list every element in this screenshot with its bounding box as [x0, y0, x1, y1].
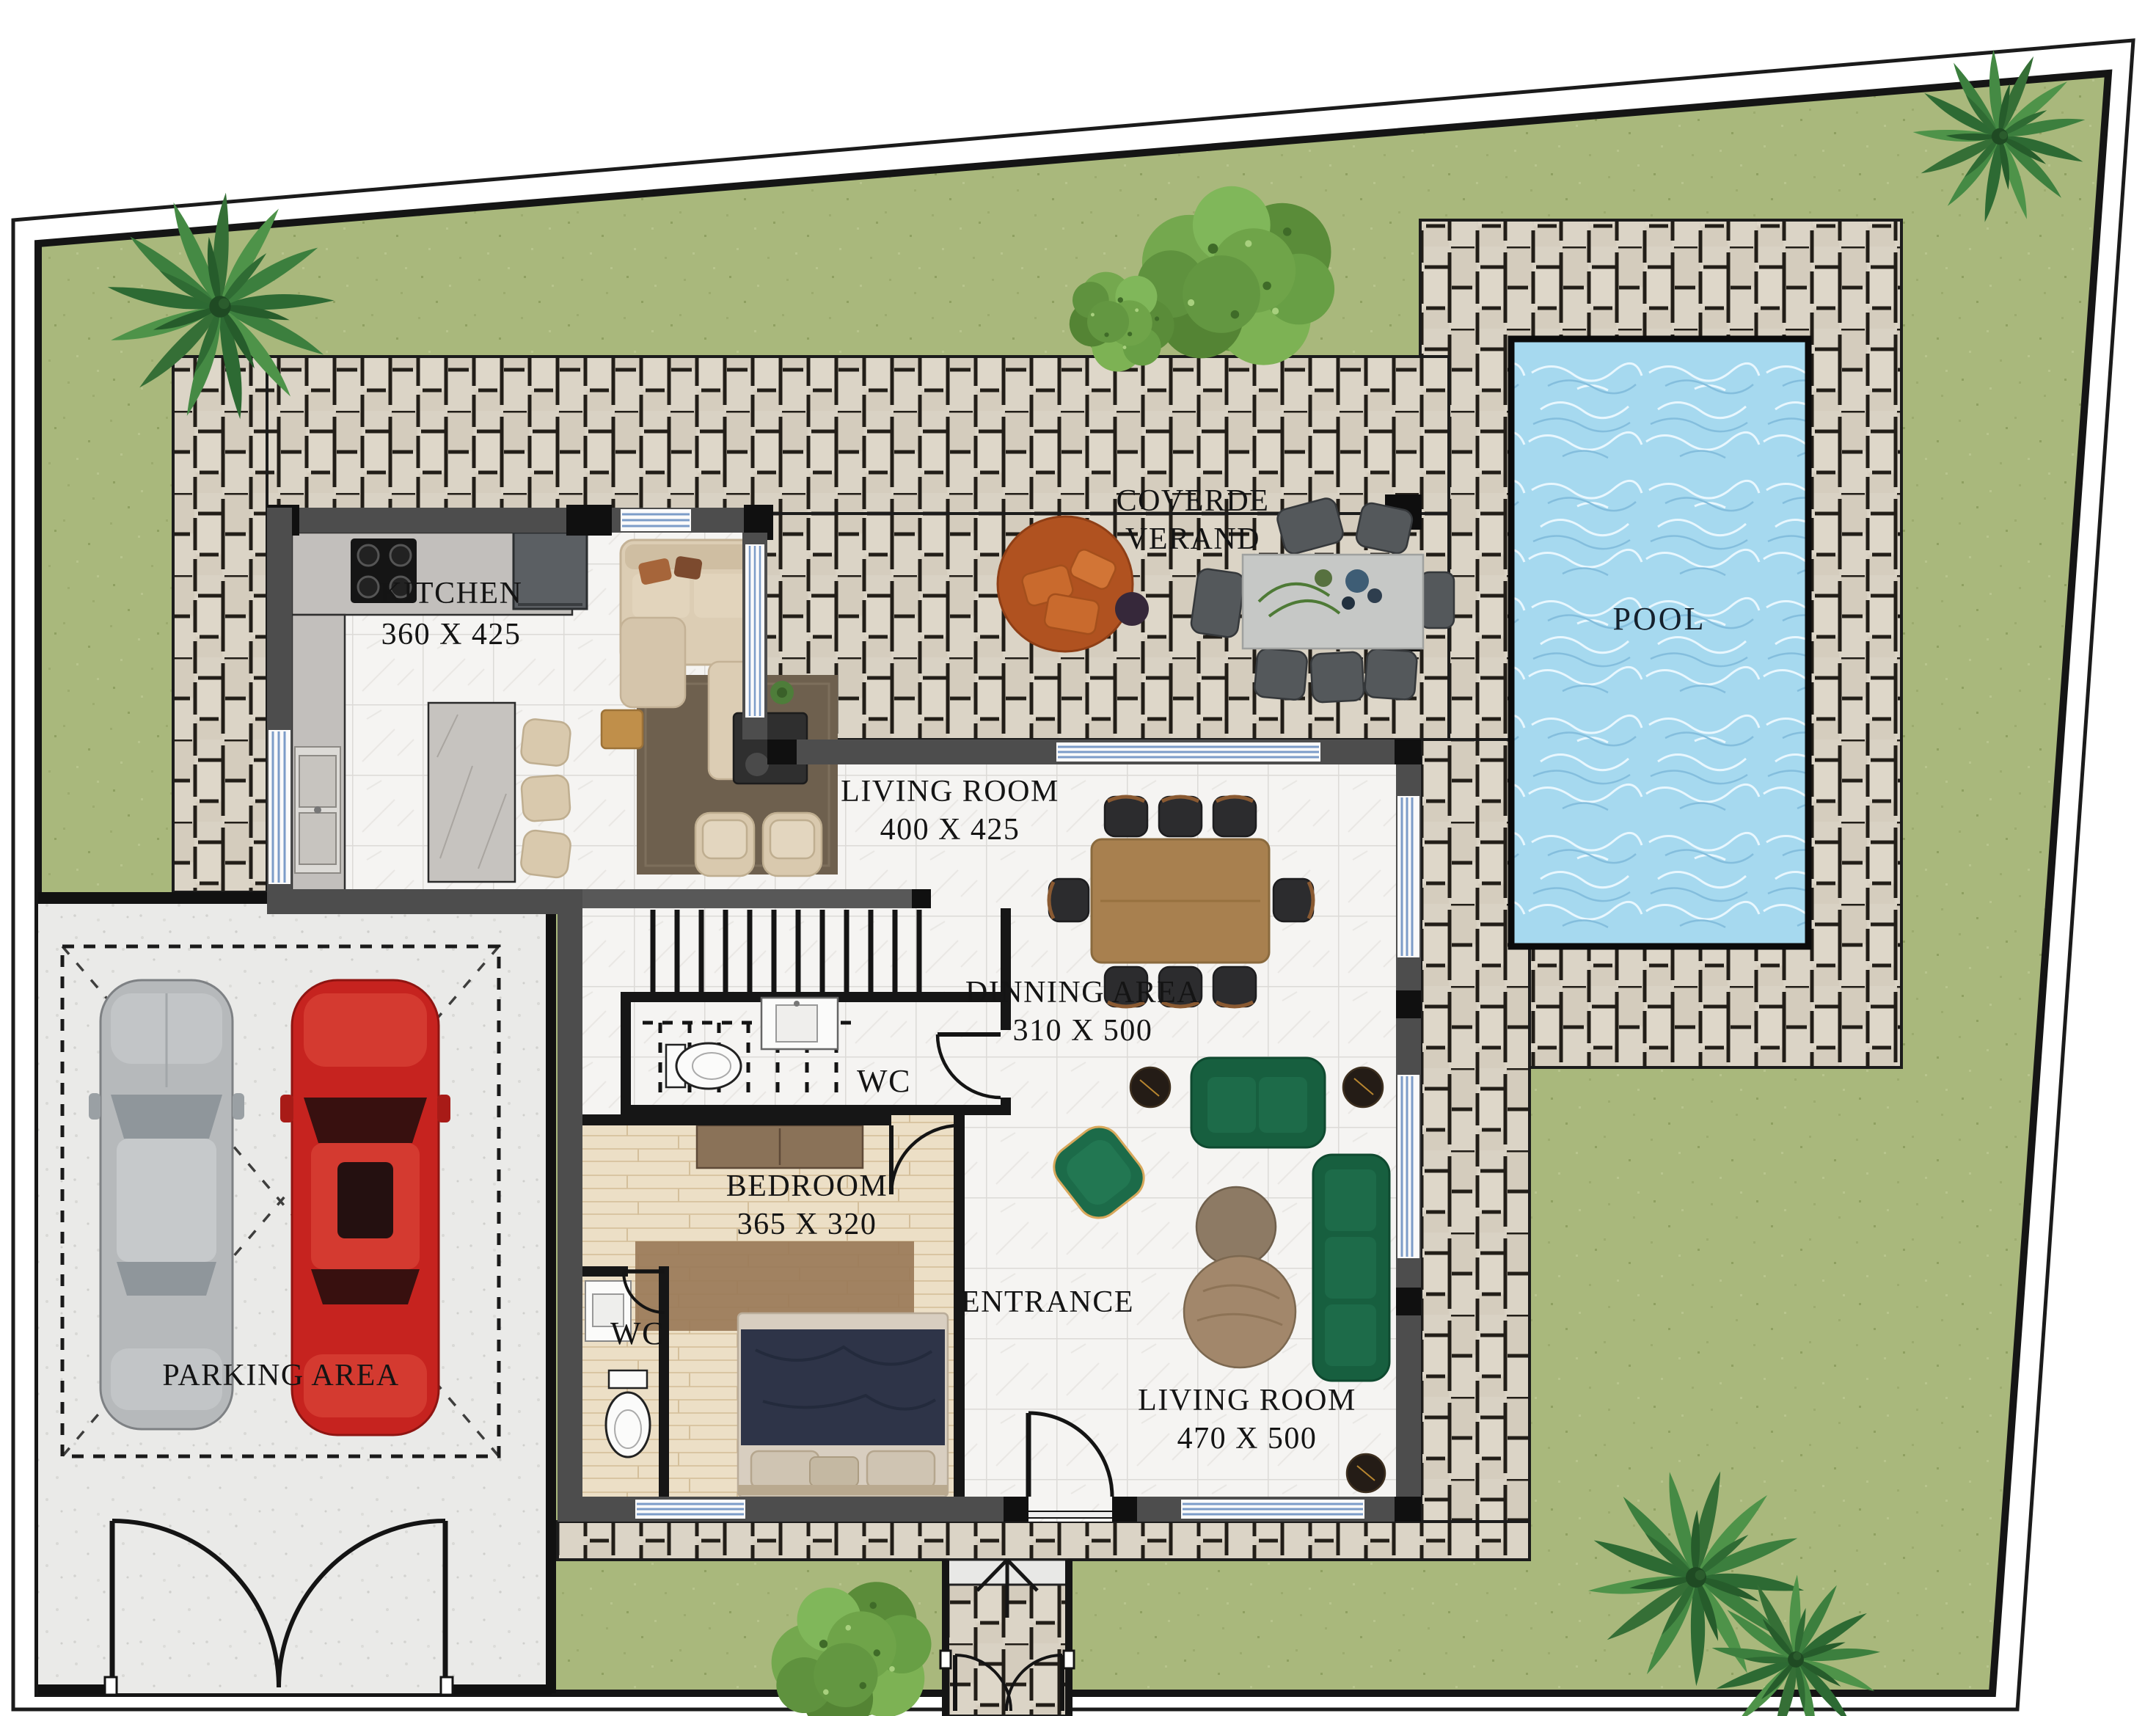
sofa-green-top — [1191, 1058, 1325, 1147]
island-stools — [520, 718, 572, 879]
swimming-pool — [1511, 339, 1808, 946]
label-entrance: ENTRANCE — [961, 1285, 1134, 1319]
floor-plan-page: PARKING AREA — [0, 0, 2156, 1716]
outdoor-table — [1243, 555, 1423, 649]
label-living-open-dims: 400 X 425 — [880, 813, 1020, 847]
wc1-toilet — [666, 1043, 741, 1089]
wc2-toilet — [606, 1370, 650, 1457]
label-dining: DINNING AREA — [965, 976, 1200, 1009]
fridge — [514, 533, 587, 609]
label-kitchen-dims: 360 X 425 — [381, 618, 522, 651]
label-wc-bedroom: WC — [610, 1315, 665, 1351]
sofa-green-right — [1313, 1155, 1389, 1381]
coffee-table-round-large — [1184, 1256, 1296, 1368]
label-dining-dims: 310 X 500 — [1013, 1014, 1153, 1048]
terrace-bottom-band — [558, 1522, 1530, 1560]
label-living-main-dims: 470 X 500 — [1177, 1422, 1318, 1456]
label-parking-area: PARKING AREA — [162, 1359, 399, 1392]
label-pool: POOL — [1613, 601, 1706, 637]
terrace-left-band — [173, 357, 267, 892]
label-bedroom-dims: 365 X 320 — [737, 1208, 877, 1241]
coffee-table-round-small — [1196, 1187, 1276, 1266]
label-kitchen: KITCHEN — [380, 577, 523, 610]
label-living-open: LIVING ROOM — [841, 775, 1059, 808]
kitchen-sink — [295, 747, 340, 873]
side-stool — [602, 710, 643, 748]
label-veranda-line1: COVERDE — [1117, 484, 1270, 518]
ottoman — [1115, 592, 1149, 626]
label-bedroom: BEDROOM — [726, 1169, 888, 1203]
wc1-sink — [761, 998, 838, 1049]
label-veranda-line2: VERAND — [1125, 522, 1260, 556]
floor-plan-drawing: PARKING AREA — [0, 0, 2156, 1716]
label-wc-understairs: WC — [857, 1063, 911, 1099]
garage-driveway: PARKING AREA — [38, 892, 556, 1695]
bed — [738, 1313, 948, 1497]
label-living-main: LIVING ROOM — [1138, 1384, 1356, 1417]
